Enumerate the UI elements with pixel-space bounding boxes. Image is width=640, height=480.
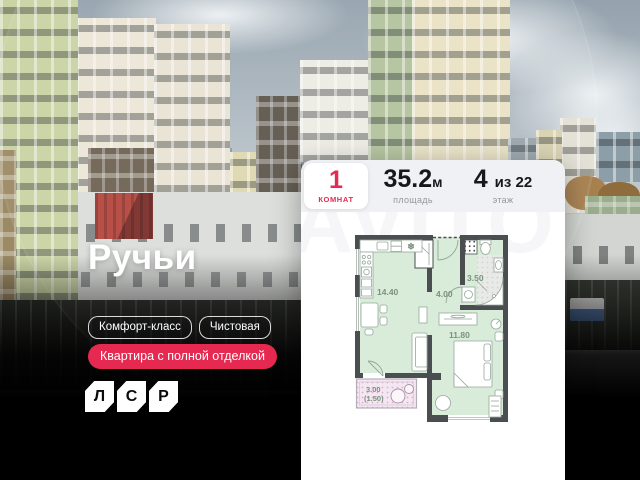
room-label-bedroom: 11.80 — [449, 330, 470, 340]
project-title: Ручьи — [88, 238, 197, 278]
balcony-chair — [391, 389, 405, 403]
floor-value: 4 — [474, 165, 488, 193]
balcony-table — [405, 385, 414, 394]
area-label: площадь — [363, 195, 463, 205]
room-label-hallway: 4.00 — [436, 289, 453, 299]
floor-label: этаж — [453, 195, 553, 205]
room-label-balcony: 3.00 — [366, 385, 381, 394]
finish-badge: Чистовая — [199, 316, 271, 339]
badge-row: Комфорт-класс Чистовая — [88, 316, 271, 339]
floorplan: ❄ — [355, 235, 508, 422]
stats-bar: 1 комнат 35.2м площадь 4 из 22 этаж — [301, 160, 565, 212]
snowflake-icon: ❄ — [407, 242, 415, 252]
full-finish-badge: Квартира с полной отделкой — [88, 344, 277, 369]
room-label-balcony-secondary: (1.50) — [364, 394, 384, 403]
class-badge: Комфорт-класс — [88, 316, 192, 339]
lsr-logo: Л С Р — [85, 381, 178, 412]
rooms-value: 1 — [329, 168, 343, 193]
apartment-card: AVITO 1 комнат 35.2м площадь 4 из 22 эта… — [301, 160, 565, 480]
rooms-label: комнат — [318, 195, 353, 204]
logo-tile-l: Л — [85, 381, 114, 412]
area-value: 35.2 — [383, 165, 432, 193]
room-label-kitchen-living: 14.40 — [377, 287, 399, 297]
stat-rooms: 1 комнат — [304, 163, 368, 209]
listing-banner: Ручьи Комфорт-класс Чистовая Квартира с … — [0, 0, 640, 480]
logo-tile-s: С — [117, 381, 146, 412]
floor-suffix: из 22 — [495, 174, 533, 191]
room-label-bathroom: 3.50 — [467, 273, 484, 283]
area-unit: м — [432, 174, 442, 190]
stat-floor: 4 из 22 этаж — [453, 167, 553, 205]
logo-tile-r: Р — [149, 381, 178, 412]
stat-area: 35.2м площадь — [363, 167, 463, 205]
